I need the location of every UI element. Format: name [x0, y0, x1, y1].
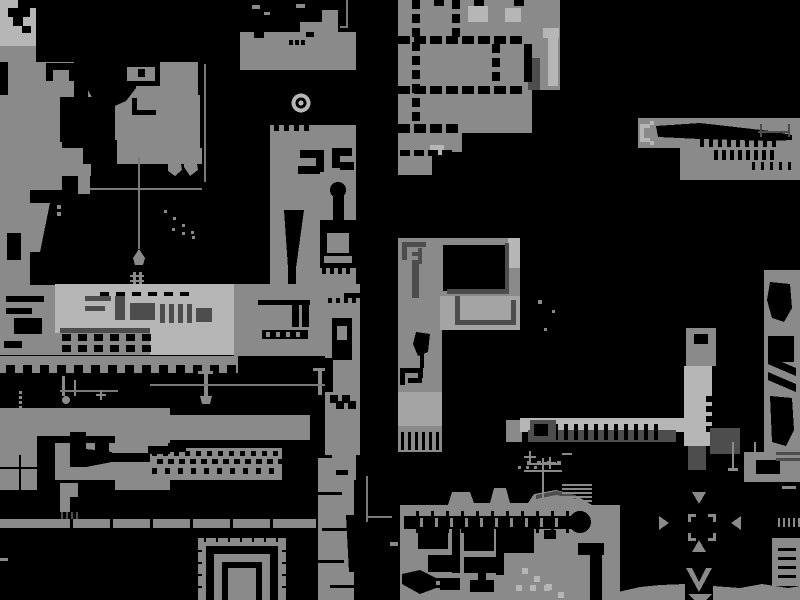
region-tower: [325, 298, 360, 480]
screenshot-root: [0, 0, 800, 600]
game-map[interactable]: [0, 0, 800, 600]
